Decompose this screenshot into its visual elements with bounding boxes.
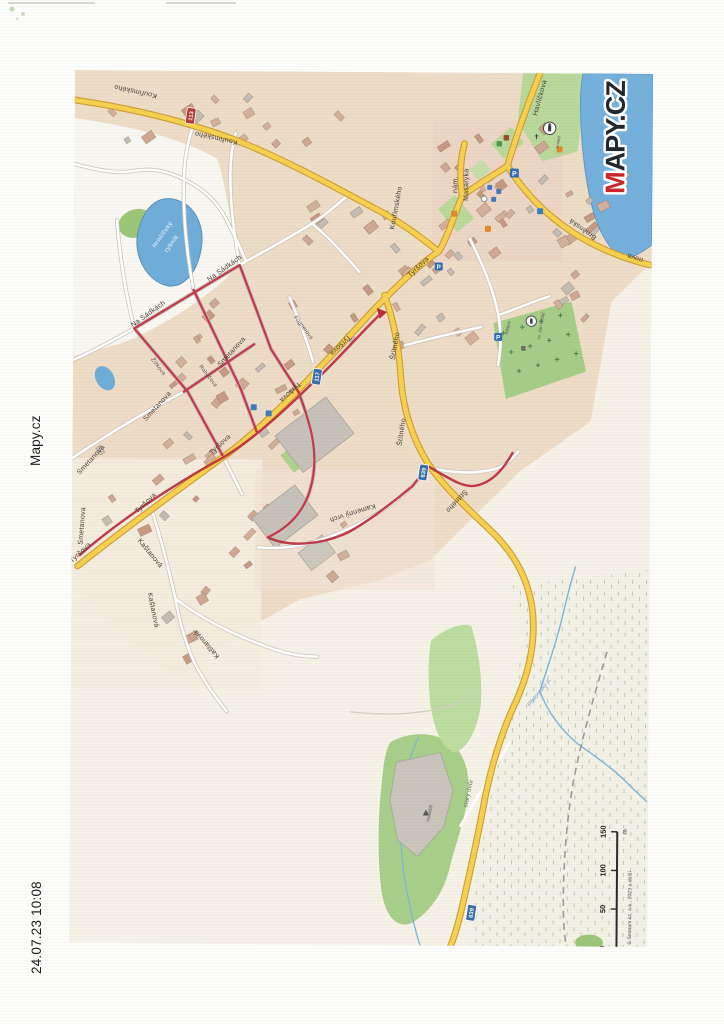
poi-circle-icon	[481, 196, 487, 202]
square-label-line2: Masaryka	[463, 169, 470, 201]
scanned-map-page: Mapy.cz 24.07.23 10:08	[0, 0, 724, 1024]
shop-icon	[485, 226, 491, 232]
logo-first-letter: M	[600, 171, 630, 194]
bus-stop-icon	[251, 404, 257, 410]
scale-unit: m	[622, 829, 629, 834]
svg-text:P: P	[496, 335, 501, 342]
scale-tick: 0	[598, 946, 607, 950]
scale-tick: 50	[598, 905, 607, 913]
poi-icon	[496, 189, 501, 194]
chapel-icon	[526, 316, 536, 326]
svg-text:P: P	[512, 171, 517, 178]
parking-icon: P	[494, 333, 502, 342]
svg-text:P: P	[436, 264, 441, 271]
site-watermark: Mapy.cz	[28, 415, 43, 466]
bus-stop-icon	[537, 208, 543, 214]
page-canvas: Mapy.cz 24.07.23 10:08	[0, 0, 724, 1024]
church-icon	[543, 122, 555, 134]
cross-icon: ✝	[534, 133, 540, 141]
poi-icon	[487, 185, 492, 190]
parking-icon: P	[435, 263, 443, 272]
map-attribution: © Seznam.cz, a.s., 2023 a další	[626, 870, 634, 944]
poi-icon	[491, 197, 496, 202]
museum-icon	[504, 135, 510, 141]
scan-artifacts	[8, 3, 236, 20]
scale-tick: 100	[598, 864, 607, 877]
svg-text:MAPY.CZ: MAPY.CZ	[600, 81, 631, 194]
scale-tick: 150	[599, 825, 608, 838]
mapy-logo: MAPY.CZ	[600, 81, 631, 194]
parking-icon: P	[510, 169, 519, 178]
print-timestamp: 24.07.23 10:08	[29, 881, 44, 974]
nature-poi-icon	[497, 141, 503, 147]
map-image: P P P	[66, 70, 653, 955]
shop-icon	[451, 211, 457, 217]
square-label-line1: nám.	[452, 176, 459, 193]
logo-rest: APY.CZ	[600, 81, 631, 172]
bus-stop-icon	[266, 410, 272, 416]
gate-icon	[521, 346, 526, 351]
